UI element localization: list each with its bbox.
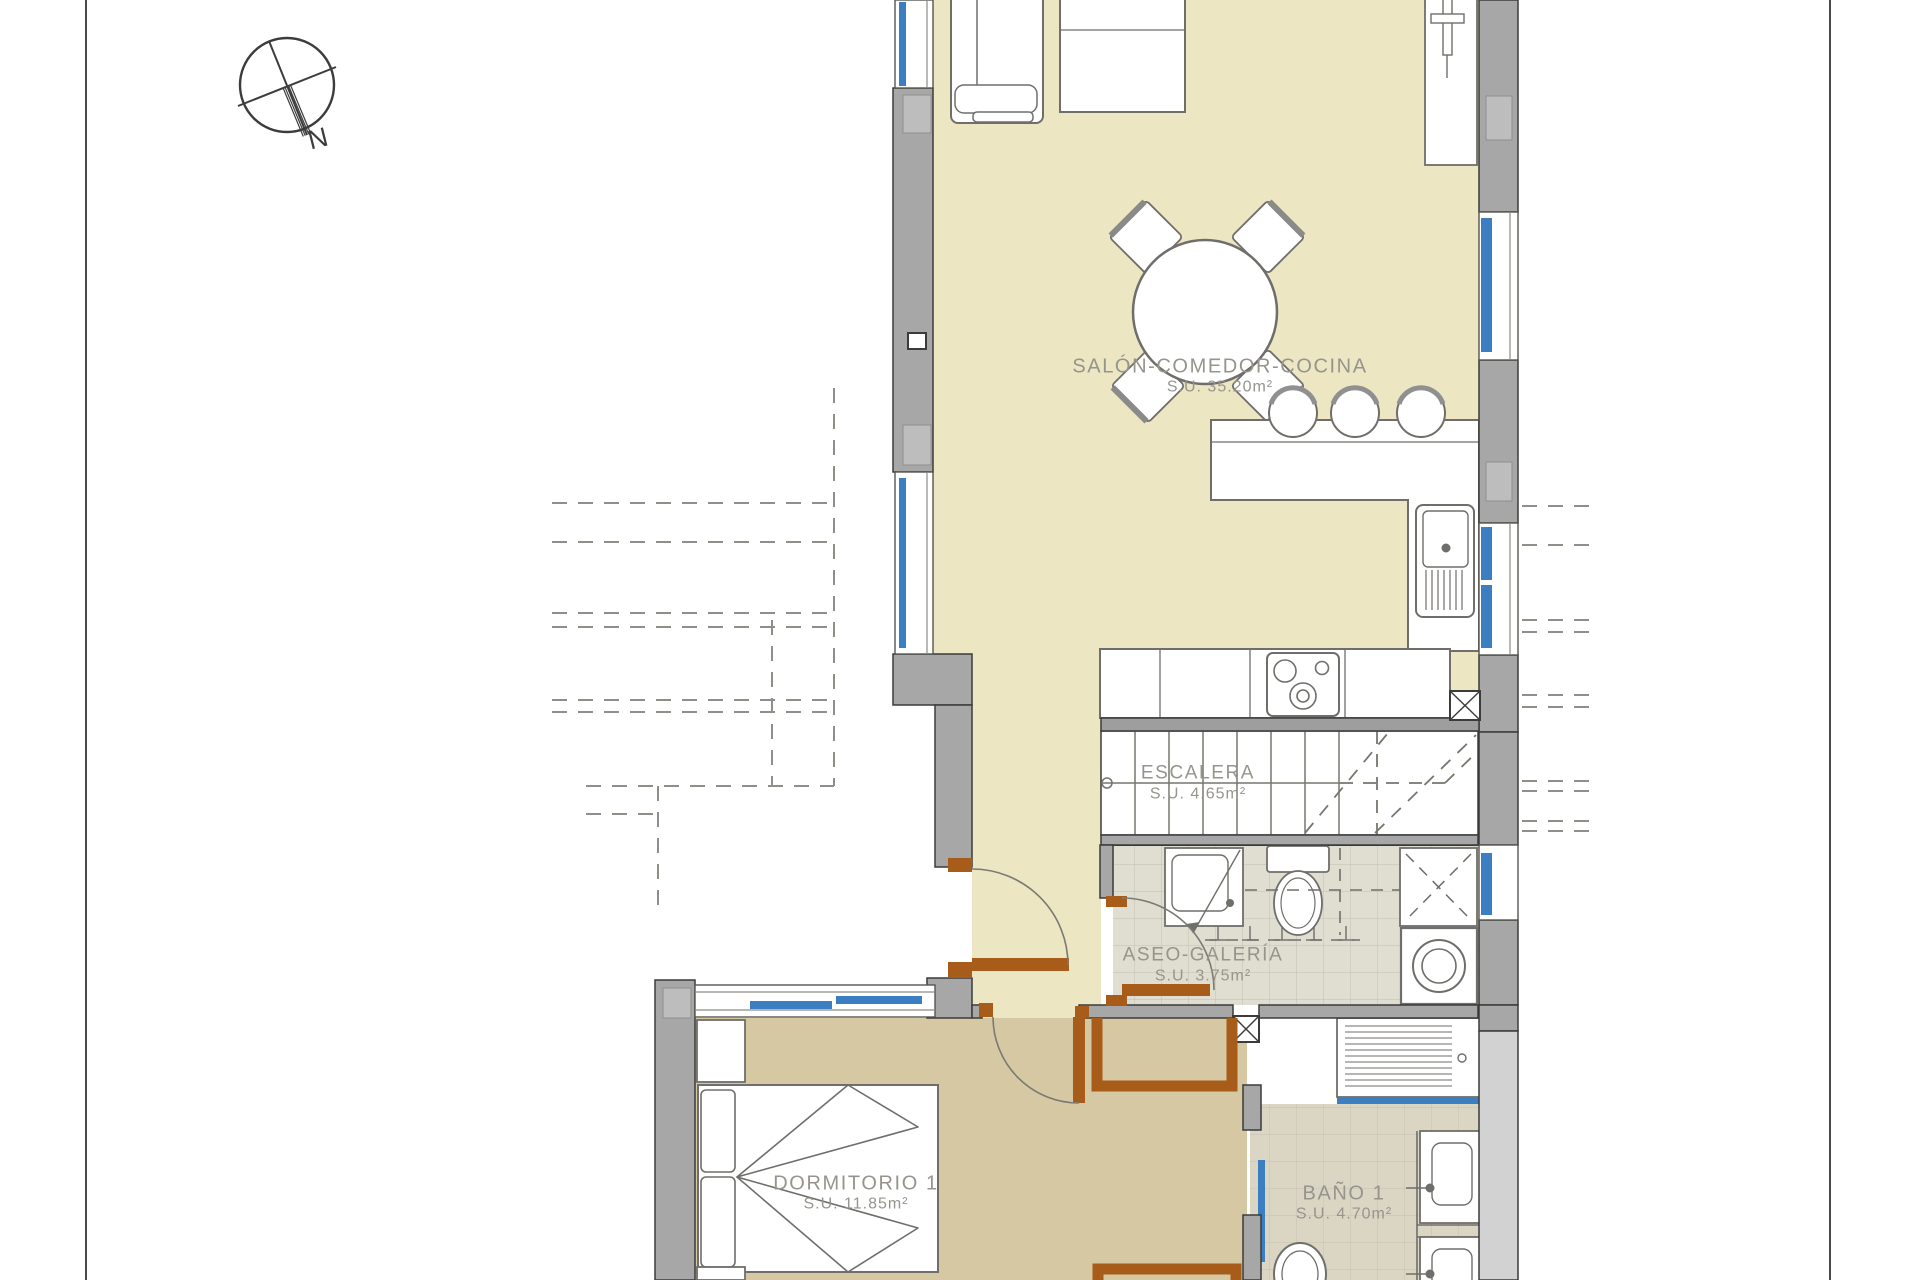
window: [695, 985, 935, 1017]
shower-glass: [1337, 1097, 1480, 1104]
coffee-table: [1060, 0, 1185, 112]
window: [895, 472, 933, 654]
floor-plan-page: N SALÓN-COMEDOR-COCINA S.U. 35.20m² ESCA…: [0, 0, 1920, 1280]
nightstand: [697, 1020, 745, 1082]
pillow: [701, 1177, 735, 1267]
window: [895, 0, 933, 88]
stairs: [1101, 731, 1478, 835]
kitchen-sink: [1416, 505, 1474, 617]
water-heater: [1400, 848, 1477, 926]
pillow: [701, 1090, 735, 1172]
floor-plan-drawing: [0, 0, 1920, 1280]
window: [1479, 523, 1518, 655]
nightstand: [697, 1267, 745, 1280]
aseo-basin: [1165, 848, 1243, 933]
window: [1479, 845, 1518, 920]
bar-stool: [1331, 388, 1379, 437]
shower-tray: [1337, 1018, 1480, 1097]
cooktop: [1267, 653, 1339, 716]
dining-table: [1133, 240, 1277, 384]
north-arrow-icon: [238, 38, 336, 137]
wall-box: [908, 333, 926, 349]
window: [1479, 212, 1518, 360]
bar-stool: [1397, 388, 1445, 437]
washing-machine: [1401, 928, 1477, 1004]
bar-stool: [1269, 388, 1317, 437]
column-x: [1450, 691, 1480, 720]
